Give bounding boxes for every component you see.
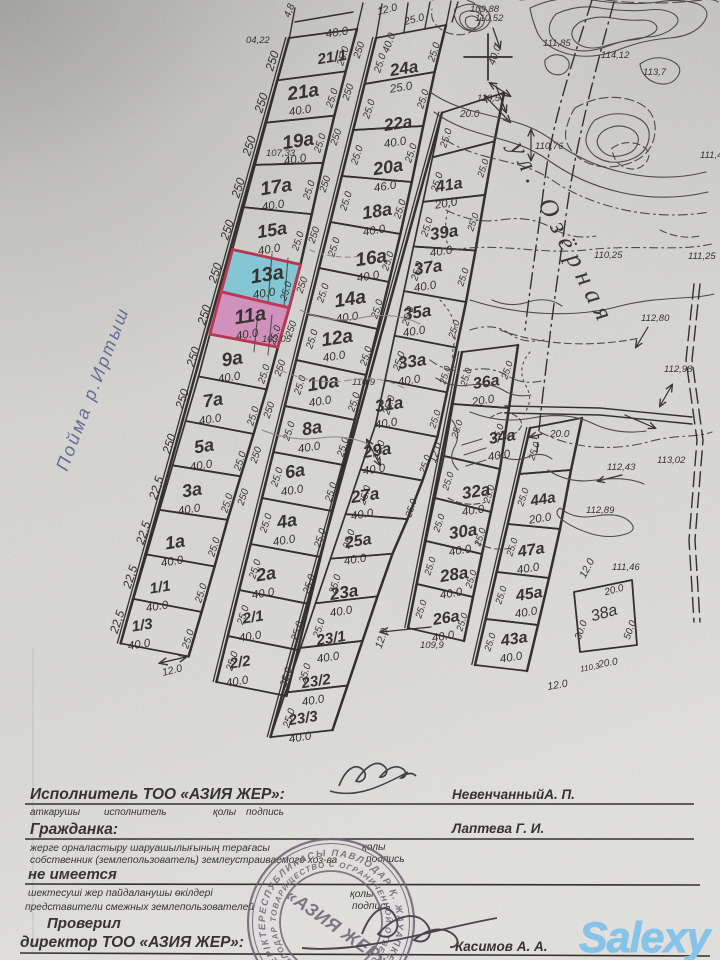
svg-text:1а: 1а — [164, 531, 187, 554]
svg-text:не имеется: не имеется — [28, 866, 117, 883]
svg-text:103,05: 103,05 — [262, 334, 292, 345]
svg-text:Гражданка:: Гражданка: — [30, 821, 118, 838]
svg-text:аткарушы: аткарушы — [30, 807, 81, 818]
svg-text:112,98: 112,98 — [664, 364, 693, 375]
svg-text:6а: 6а — [284, 460, 307, 483]
svg-text:110,25: 110,25 — [594, 250, 623, 261]
svg-text:109,88: 109,88 — [470, 4, 500, 15]
svg-text:113,7: 113,7 — [643, 67, 667, 78]
svg-text:1/1: 1/1 — [148, 577, 171, 597]
svg-text:20.0: 20.0 — [549, 429, 570, 440]
svg-text:подпись: подпись — [246, 807, 284, 818]
svg-text:Лаптева Г. И.: Лаптева Г. И. — [451, 821, 544, 836]
svg-text:7а: 7а — [202, 389, 225, 412]
svg-text:қолы: қолы — [213, 807, 237, 818]
svg-text:112,80: 112,80 — [641, 313, 670, 324]
svg-text:109,9: 109,9 — [420, 640, 444, 651]
svg-text:04,22: 04,22 — [246, 35, 270, 46]
svg-text:1/3: 1/3 — [130, 615, 154, 635]
svg-text:112,43: 112,43 — [607, 462, 636, 473]
svg-text:исполнитель: исполнитель — [104, 807, 167, 818]
svg-text:Касимов А. А.: Касимов А. А. — [455, 939, 547, 954]
svg-text:114,12: 114,12 — [601, 50, 630, 61]
svg-text:шектесуші жер пайдаланушы өкіл: шектесуші жер пайдаланушы өкілдері — [28, 888, 213, 899]
svg-text:9а: 9а — [220, 347, 245, 371]
svg-text:4а: 4а — [275, 510, 299, 533]
svg-text:представители смежных землепол: представители смежных землепользователей — [25, 902, 254, 913]
svg-text:8а: 8а — [301, 417, 324, 440]
svg-text:директор ТОО «АЗИЯ ЖЕР»:: директор ТОО «АЗИЯ ЖЕР»: — [20, 934, 244, 951]
svg-text:3а: 3а — [181, 479, 204, 502]
svg-text:111,25: 111,25 — [688, 251, 716, 262]
svg-text:110,57: 110,57 — [477, 93, 506, 104]
svg-text:112,89: 112,89 — [586, 505, 615, 516]
svg-text:НевенчанныйА. П.: НевенчанныйА. П. — [452, 787, 575, 802]
svg-text:Salexy: Salexy — [579, 914, 712, 960]
svg-text:Исполнитель ТОО «АЗИЯ ЖЕР»:: Исполнитель ТОО «АЗИЯ ЖЕР»: — [30, 786, 285, 803]
svg-text:5а: 5а — [193, 435, 216, 458]
svg-text:111,4: 111,4 — [700, 150, 720, 161]
svg-text:107,33: 107,33 — [266, 148, 296, 159]
svg-text:Проверил: Проверил — [47, 915, 121, 932]
svg-text:111,46: 111,46 — [612, 562, 640, 573]
svg-text:113,02: 113,02 — [657, 455, 686, 466]
svg-text:жерге орналастыру шаруашылығын: жерге орналастыру шаруашылығының терағас… — [29, 843, 270, 854]
